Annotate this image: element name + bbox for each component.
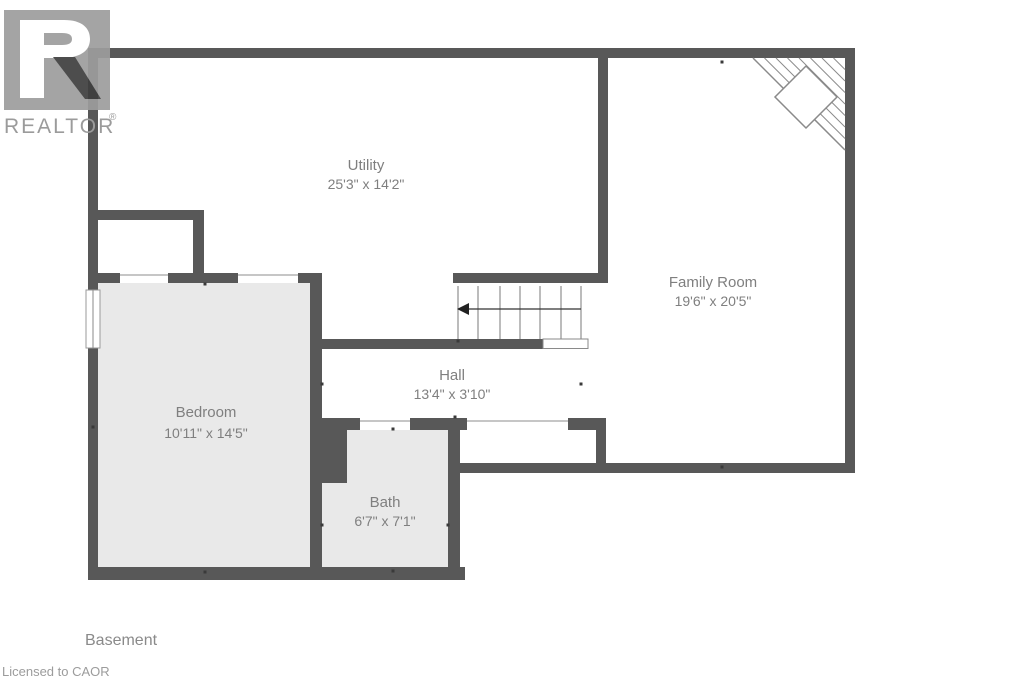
wall-hall-bottom-c xyxy=(568,418,606,430)
corner-hatch-feature xyxy=(753,58,845,150)
utility-dims: 25'3" x 14'2" xyxy=(328,176,405,192)
wall-closet-top xyxy=(98,210,204,220)
wall-bath-chase-block xyxy=(312,423,347,483)
wall-bedroom-top-b xyxy=(168,273,238,283)
hall-dims: 13'4" x 3'10" xyxy=(414,386,491,402)
wall-bedroom-bath-bottom xyxy=(88,567,465,580)
hall-label: Hall xyxy=(439,367,465,384)
stair-direction-arrow-icon xyxy=(457,303,469,315)
wall-bedroom-top-a xyxy=(98,273,120,283)
utility-label: Utility xyxy=(348,157,385,174)
bath-dims: 6'7" x 7'1" xyxy=(354,513,415,529)
family-room-dims: 19'6" x 20'5" xyxy=(675,293,752,309)
bedroom-label: Bedroom xyxy=(176,404,237,421)
family-room-label: Family Room xyxy=(669,274,757,291)
wall-outer-right xyxy=(845,48,855,473)
wall-closet-stub xyxy=(193,220,204,275)
wall-bath-right xyxy=(448,430,460,570)
bedroom-dims: 10'11" x 14'5" xyxy=(164,425,248,441)
wall-utility-family-divider xyxy=(598,58,608,283)
realtor-logo xyxy=(4,10,110,110)
bath-label: Bath xyxy=(370,494,401,511)
floorplan-page: Utility 25'3" x 14'2" Family Room 19'6" … xyxy=(0,0,1024,681)
wall-outer-top xyxy=(88,48,855,58)
window-symbol xyxy=(86,290,100,348)
registered-mark: ® xyxy=(109,112,117,123)
floor-title: Basement xyxy=(85,632,158,649)
wall-family-bottom xyxy=(455,463,855,473)
wall-hall-top xyxy=(312,339,543,349)
logo-wordmark: REALTOR xyxy=(4,115,115,138)
wall-hall-bottom-b xyxy=(410,418,467,430)
floor-plan-canvas: Utility 25'3" x 14'2" Family Room 19'6" … xyxy=(0,0,1024,681)
license-note: Licensed to CAOR xyxy=(2,664,110,679)
wall-nook-stub xyxy=(596,430,606,468)
stair-open-edge xyxy=(543,339,588,349)
wall-utility-bottom xyxy=(453,273,608,283)
wall-outer-left-lower xyxy=(88,348,98,580)
